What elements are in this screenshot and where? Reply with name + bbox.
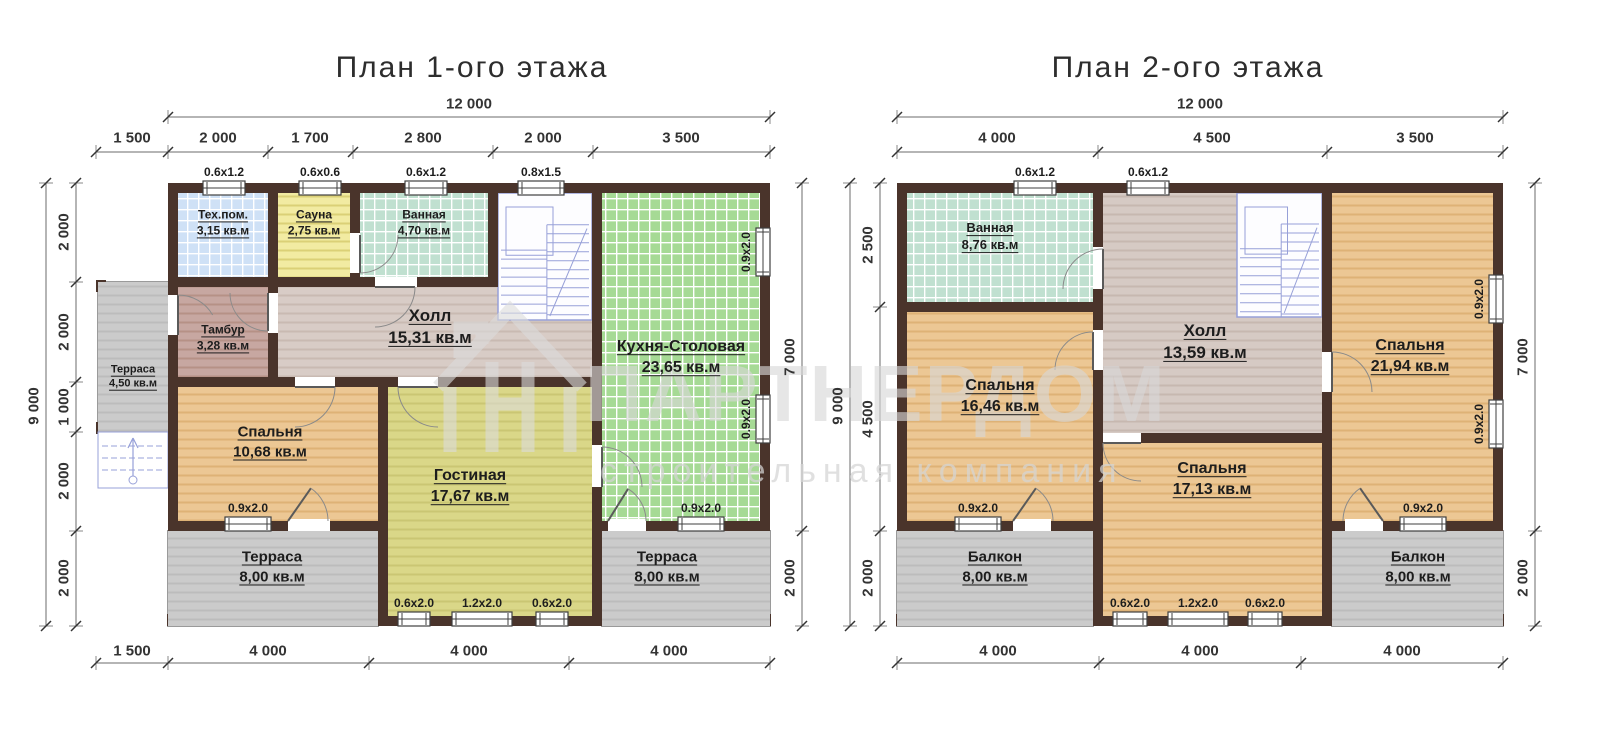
window-symbol [955,517,1001,531]
door-gap [168,295,178,335]
wall [168,277,498,287]
dimension-line [795,178,809,631]
floor-plan-2 [843,110,1542,670]
room-fill [907,193,1093,302]
floor-plan-1 [39,110,809,670]
room-fill [388,387,592,616]
wall [897,183,1503,193]
room-fill [897,531,1093,626]
wall [168,183,178,531]
window-symbol [299,181,341,195]
window-symbol [1014,181,1056,195]
door-gap [1093,330,1103,370]
door-gap [1322,352,1332,392]
room-fill [602,531,770,626]
window-symbol [452,612,512,626]
wall [268,183,278,387]
window-symbol [1489,400,1503,448]
dimension-line [873,178,887,631]
porch [98,432,168,488]
window-symbol [1127,181,1169,195]
stair-outline [1237,193,1322,317]
window-symbol [518,181,564,195]
room-fill [1332,193,1493,521]
wall [168,521,378,531]
dimension-line [91,656,775,670]
door-gap [592,445,602,487]
wall [897,302,1103,312]
door-gap [288,519,330,531]
dimension-line [39,178,53,631]
wall [897,183,907,531]
wall [168,183,770,193]
window-symbol [756,228,770,276]
dimension-line [843,178,857,631]
stair-outline [498,193,592,320]
door-gap [350,233,360,273]
window-symbol [405,181,447,195]
door-gap [295,377,335,387]
door-gap [608,519,646,531]
door-gap [1103,433,1141,443]
room-fill [278,193,350,277]
window-symbol [1168,612,1228,626]
window-symbol [203,181,245,195]
room-fill [1103,443,1322,616]
dimension-line [69,178,83,631]
floorplan-canvas: ПАРТНЕРДОМ строительная компания План 1-… [0,0,1600,750]
dimension-line [163,110,775,124]
plans-svg [0,0,1600,750]
door-gap [398,377,438,387]
door-gap [1093,247,1103,289]
room-fill [602,193,760,521]
wall [488,183,498,287]
wall [1493,183,1503,531]
room-fill [178,287,268,377]
window-symbol [398,612,430,626]
window-symbol [225,517,271,531]
room-fill [98,282,168,432]
window-symbol [536,612,568,626]
door-gap [1345,519,1383,531]
room-fill [1332,531,1503,626]
wall [168,377,600,387]
door-gap [375,277,417,287]
staircase [498,193,592,320]
room-fill [178,387,378,521]
window-symbol [1113,612,1147,626]
dimension-line [91,145,775,159]
room-fill [907,312,1093,521]
room-fill [360,193,488,277]
window-symbol [678,517,724,531]
wall [378,387,388,626]
dimension-line [892,110,1508,124]
wall [1322,183,1332,626]
dimension-line [892,656,1508,670]
porch-start-mark [129,476,137,484]
dimension-line [892,145,1508,159]
window-symbol [1489,275,1503,323]
room-fill [178,193,268,277]
wall [592,183,602,626]
room-fill [168,531,378,626]
dimension-line [1528,178,1542,631]
staircase [1237,193,1322,317]
window-symbol [756,395,770,443]
door-gap [1013,519,1051,531]
window-symbol [1400,517,1446,531]
door-gap [268,293,278,333]
window-symbol [1248,612,1282,626]
